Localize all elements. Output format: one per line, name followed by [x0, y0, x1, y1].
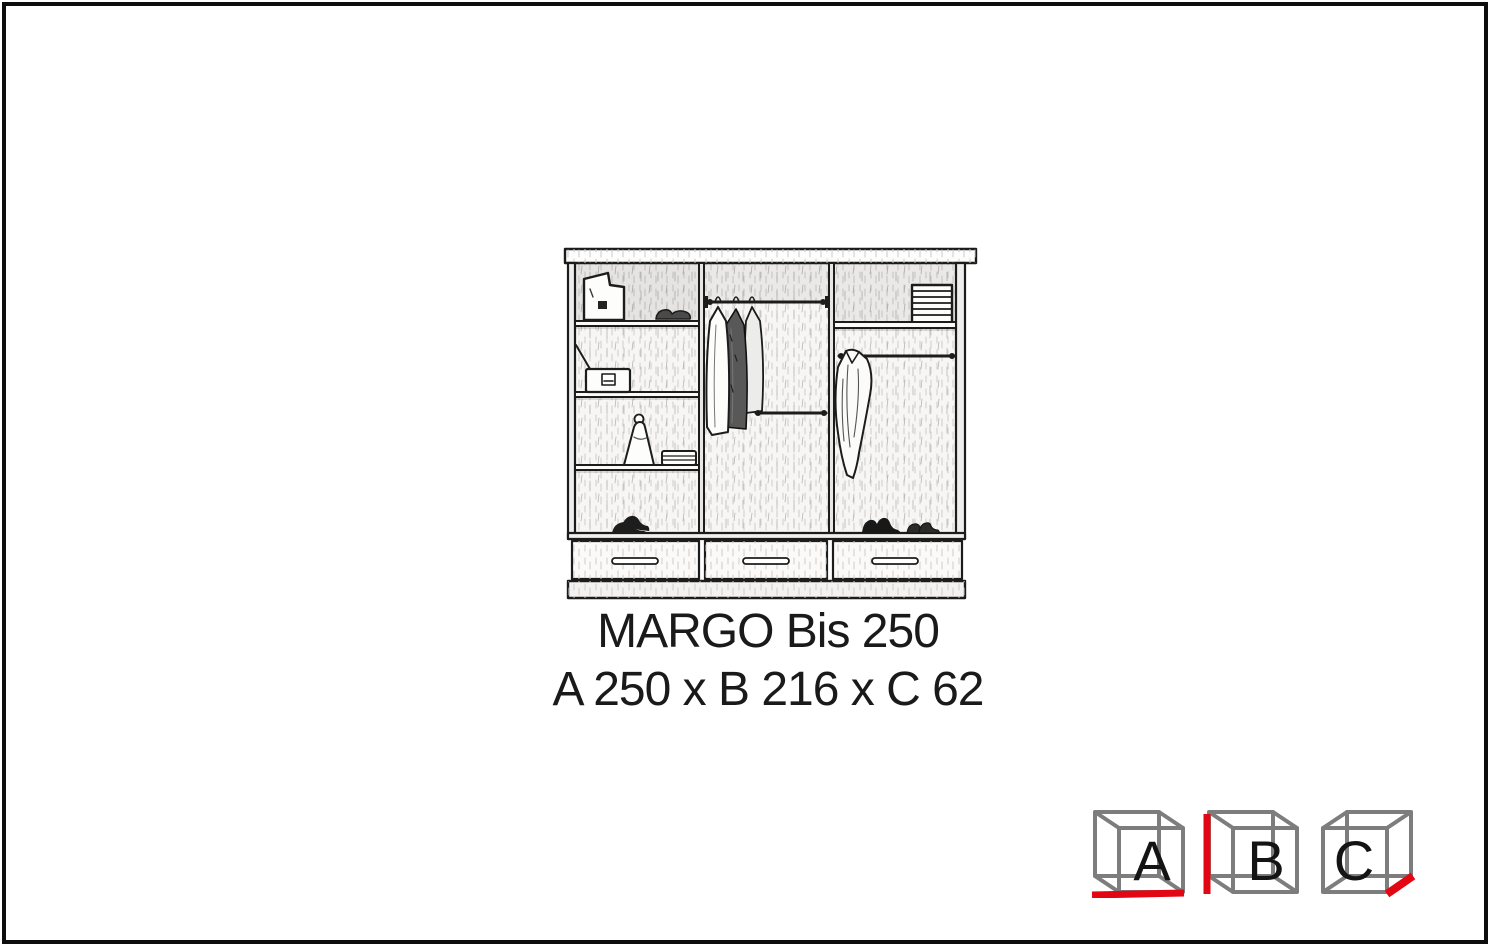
cube-letter: C	[1322, 828, 1386, 892]
cube-depth-icon: C	[1316, 806, 1418, 898]
shelf	[834, 322, 956, 328]
drawer-handle	[612, 558, 658, 564]
partition-right	[829, 263, 834, 533]
dimension-legend: A B C	[1088, 806, 1418, 898]
right-side-panel	[956, 263, 965, 539]
catalog-page: MARGO Bis 250 A 250 x B 216 x C 62 A	[0, 0, 1490, 946]
cube-letter: B	[1234, 828, 1298, 892]
product-dimensions: A 250 x B 216 x C 62	[518, 661, 1018, 719]
cube-width-icon: A	[1088, 806, 1190, 898]
bottom-board	[568, 533, 965, 539]
product-caption: MARGO Bis 250 A 250 x B 216 x C 62	[518, 603, 1018, 719]
cube-height-icon: B	[1202, 806, 1304, 898]
drawer-handle	[872, 558, 918, 564]
wardrobe-illustration	[560, 245, 980, 605]
partition-left	[699, 263, 704, 533]
left-side-panel	[568, 263, 575, 539]
drawer-handle	[743, 558, 789, 564]
product-title: MARGO Bis 250	[518, 603, 1018, 661]
folded-linens-sketch	[912, 285, 952, 323]
shelf	[575, 321, 699, 326]
cube-letter: A	[1120, 828, 1184, 892]
folded-blanket-sketch	[662, 451, 696, 465]
drawer-row	[572, 541, 962, 579]
